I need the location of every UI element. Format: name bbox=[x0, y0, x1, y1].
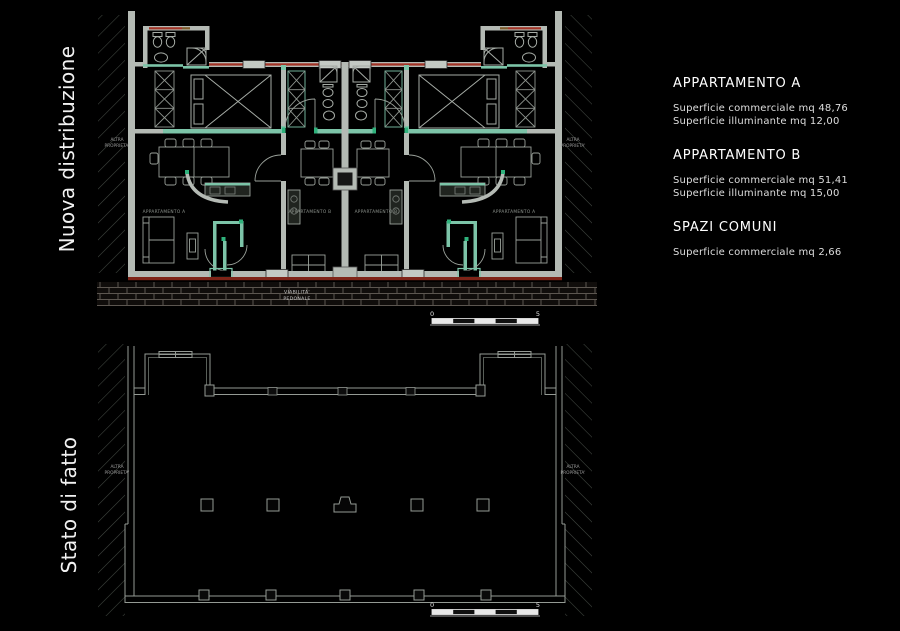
window-marker bbox=[268, 388, 415, 396]
svg-text:PROPRIETA': PROPRIETA' bbox=[105, 143, 130, 149]
legend-line: Superficie commerciale mq 48,76 bbox=[673, 103, 888, 116]
svg-text:PROPRIETA': PROPRIETA' bbox=[561, 470, 586, 476]
central-pilaster bbox=[334, 497, 356, 600]
svg-text:0: 0 bbox=[430, 601, 434, 609]
scale-bar: 0 5 bbox=[430, 601, 540, 616]
apartment-half-left bbox=[98, 11, 343, 280]
legend-heading: APPARTAMENTO B bbox=[673, 148, 888, 163]
svg-text:PROPRIETA': PROPRIETA' bbox=[561, 143, 586, 149]
legend-heading: SPAZI COMUNI bbox=[673, 220, 888, 235]
legend-panel: APPARTAMENTO A Superficie commerciale mq… bbox=[673, 76, 888, 280]
walkway-label: VIABILITA' bbox=[284, 290, 310, 296]
legend-heading: APPARTAMENTO A bbox=[673, 76, 888, 91]
room-label: APPARTAMENTO B bbox=[355, 209, 398, 215]
legend-line: Superficie commerciale mq 51,41 bbox=[673, 175, 888, 188]
svg-text:ALTRA: ALTRA bbox=[566, 137, 579, 143]
svg-text:5: 5 bbox=[536, 601, 540, 609]
legend-section-spazi-comuni: SPAZI COMUNI Superficie commerciale mq 2… bbox=[673, 220, 888, 260]
walkway-label: PEDONALE bbox=[283, 296, 310, 302]
legend-line: Superficie illuminante mq 12,00 bbox=[673, 116, 888, 129]
stair-core bbox=[333, 62, 357, 278]
room-label: APPARTAMENTO A bbox=[493, 209, 536, 215]
svg-text:ALTRA: ALTRA bbox=[110, 464, 123, 470]
svg-text:0: 0 bbox=[430, 310, 434, 318]
legend-line: Superficie illuminante mq 15,00 bbox=[673, 188, 888, 201]
walkway-red-strip bbox=[128, 277, 562, 280]
existing-half-left bbox=[98, 344, 345, 616]
title-stato-di-fatto: Stato di fatto bbox=[57, 437, 81, 574]
room-label: APPARTAMENTO B bbox=[289, 209, 332, 215]
svg-text:ALTRA: ALTRA bbox=[110, 137, 123, 143]
scale-bar: 0 5 bbox=[430, 310, 540, 325]
room-label: APPARTAMENTO A bbox=[143, 209, 186, 215]
svg-text:5: 5 bbox=[536, 310, 540, 318]
plan-nuova-distribuzione: VIABILITA' PEDONALE APPARTAMENTO A APPAR… bbox=[95, 5, 600, 338]
legend-line: Superficie commerciale mq 2,66 bbox=[673, 247, 888, 260]
legend-section-apartment-b: APPARTAMENTO B Superficie commerciale mq… bbox=[673, 148, 888, 200]
svg-text:PROPRIETA': PROPRIETA' bbox=[105, 470, 130, 476]
title-nuova-distribuzione: Nuova distribuzione bbox=[55, 46, 79, 253]
drawing-board: Nuova distribuzione Stato di fatto bbox=[0, 0, 900, 631]
existing-half-right bbox=[345, 344, 592, 616]
apartment-half-right bbox=[347, 11, 592, 280]
legend-section-apartment-a: APPARTAMENTO A Superficie commerciale mq… bbox=[673, 76, 888, 128]
plan-stato-di-fatto: ALTRA PROPRIETA' ALTRA PROPRIETA' 0 5 bbox=[95, 338, 600, 631]
brick-walkway bbox=[97, 282, 597, 306]
column-marker bbox=[340, 590, 350, 600]
svg-text:ALTRA: ALTRA bbox=[566, 464, 579, 470]
